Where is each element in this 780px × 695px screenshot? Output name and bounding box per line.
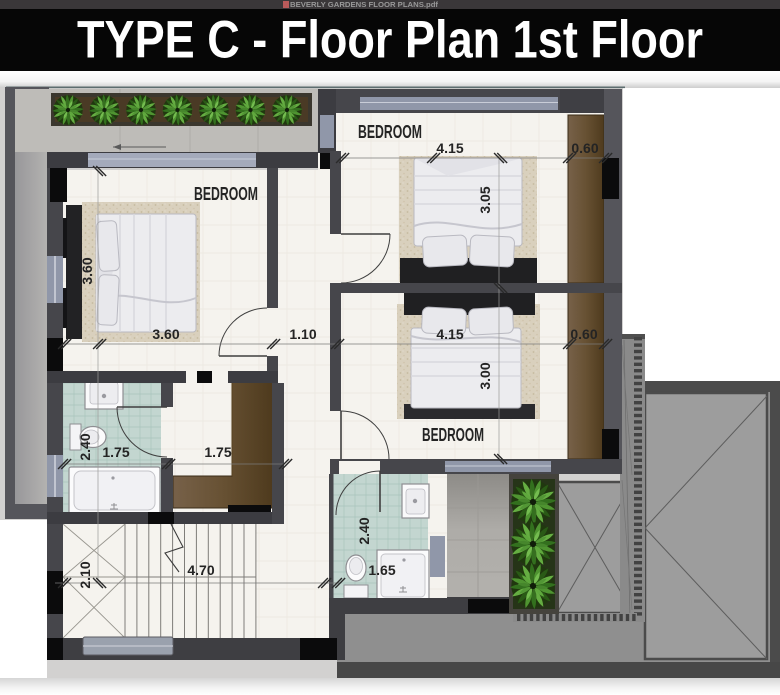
svg-text:1.75: 1.75 (204, 444, 231, 460)
svg-text:0.60: 0.60 (571, 140, 598, 156)
svg-text:2.40: 2.40 (356, 517, 372, 544)
svg-text:0.60: 0.60 (570, 326, 597, 342)
svg-text:3.60: 3.60 (79, 257, 95, 284)
svg-text:2.10: 2.10 (77, 561, 93, 588)
svg-text:BEDROOM: BEDROOM (358, 122, 422, 142)
svg-text:1.10: 1.10 (289, 326, 316, 342)
svg-text:4.15: 4.15 (436, 140, 463, 156)
svg-text:BEDROOM: BEDROOM (194, 184, 258, 204)
svg-text:BEVERLY GARDENS FLOOR PLANS.pd: BEVERLY GARDENS FLOOR PLANS.pdf (290, 2, 439, 9)
svg-text:3.60: 3.60 (152, 326, 179, 342)
svg-text:1.75: 1.75 (102, 444, 129, 460)
svg-text:4.70: 4.70 (187, 562, 214, 578)
svg-text:1.65: 1.65 (368, 562, 395, 578)
svg-text:3.00: 3.00 (477, 362, 493, 389)
svg-text:BEDROOM: BEDROOM (422, 425, 484, 445)
svg-text:2.40: 2.40 (77, 433, 93, 460)
svg-text:3.05: 3.05 (477, 186, 493, 213)
svg-text:4.15: 4.15 (436, 326, 463, 342)
svg-text:TYPE C - Floor Plan 1st Floor: TYPE C - Floor Plan 1st Floor (77, 11, 703, 70)
